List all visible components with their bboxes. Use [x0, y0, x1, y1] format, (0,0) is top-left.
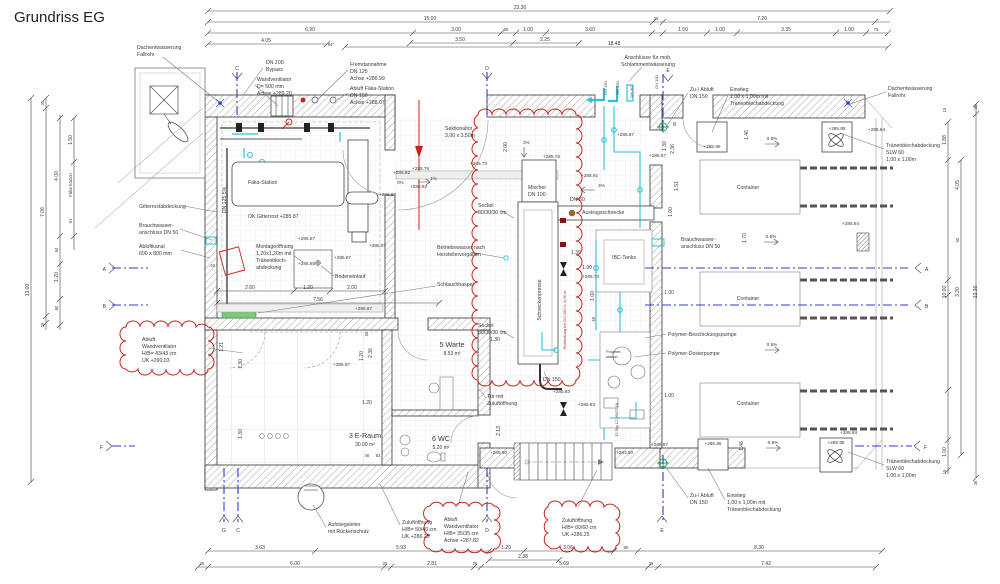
dim-label: 3.50 — [455, 37, 465, 43]
elevation-label: +285.84 — [868, 127, 885, 132]
elevation-label: 1% — [430, 176, 437, 181]
dim-label: 2.25 — [540, 37, 550, 43]
elevation-label: +285.83 — [578, 402, 595, 407]
section-marker: A — [103, 267, 107, 273]
dim-label: 1.88 — [942, 135, 948, 145]
dim-label: 1.46 — [739, 441, 745, 451]
annotation-label: Zu-/ Abluft — [690, 87, 714, 93]
elevation-label: +285.83 — [553, 389, 570, 394]
elevation-label: +285.86 — [703, 144, 720, 149]
annotation-label: Sockel — [478, 203, 494, 209]
annotation-label: DN 125 — [350, 69, 368, 75]
section-marker: G — [222, 528, 226, 534]
equipment-label: Schneckenpresse — [537, 279, 543, 320]
annotation-label: anschluss DN 50 — [139, 230, 178, 236]
section-marker: B — [103, 304, 107, 310]
section-marker: E — [660, 528, 664, 534]
elevation-label: +285.82 — [410, 184, 427, 189]
annotation-label: 1,00 x 1,00m — [886, 473, 916, 479]
dim-label: 2.00 — [347, 285, 357, 291]
dim-label: 5.69 — [559, 561, 569, 567]
dim-label: 15 — [942, 469, 947, 474]
dim-label: 7.06 — [40, 207, 46, 217]
annotation-label: Polymer-Dosierpumpe — [668, 351, 720, 357]
dim-label: 1.30 — [238, 359, 244, 369]
foundation-block — [857, 233, 869, 251]
dim-label: 64° — [328, 42, 335, 47]
container-3: Container — [700, 383, 800, 437]
dim-label: 1.30 — [662, 141, 668, 151]
dim-label: 35 — [40, 100, 45, 105]
room-label: 3 E-Raum — [349, 431, 381, 440]
elevation-label: +285.87 — [379, 192, 396, 197]
dim-label: 50 — [504, 27, 509, 32]
dim-label: 4.05 — [261, 38, 271, 44]
dim-label: 1.00 — [664, 393, 674, 399]
dim-label: 35 — [200, 561, 205, 566]
elevation-label: +285.87 — [651, 442, 668, 447]
annotation-label: Tränenblechabdeckung — [730, 101, 784, 107]
dim-label: 10.00 — [942, 286, 948, 299]
annotation-label: Brauchwasser- — [139, 223, 174, 229]
dim-label: 2.36 — [670, 144, 676, 154]
container-label: Container — [737, 185, 760, 191]
dim-label: 1.20 — [359, 351, 365, 361]
annotation-label: Betriebswasser nach — [437, 245, 485, 251]
annotation-label: Zuluftöffnung — [402, 520, 432, 526]
annotation-label: DN 150 — [350, 93, 368, 99]
dim-label: 91 — [68, 218, 73, 223]
polymer-station — [600, 332, 650, 428]
dim-label: 40 — [365, 453, 370, 458]
elevation-label: +285.87 — [649, 153, 666, 158]
dim-label: 94 — [54, 247, 59, 252]
dim-label: 4.00 — [54, 171, 60, 181]
annotation-label: Tür mit — [487, 394, 504, 400]
annotation-label: DN 125 5% — [222, 186, 228, 213]
drain-propeller-icon — [826, 132, 845, 465]
dimensions-right: 15 35 1.88 4.05 50 10.00 3.20 12.36 1.00… — [942, 104, 979, 485]
ibc-tanks — [596, 230, 652, 292]
annotation-label: Achse +286.99 — [350, 76, 385, 82]
dim-label: 35 — [973, 104, 978, 109]
dim-label: 5.93 — [396, 545, 406, 551]
room-area-label: 8.53 m² — [444, 351, 461, 357]
dim-label: 1.50 — [68, 135, 74, 145]
annotation-label: H/B= 35/35 cm — [444, 531, 478, 537]
section-marker: F — [924, 445, 927, 451]
equipment-label: IBC-Tanks — [612, 255, 636, 261]
dimensions-left: 13.00 35 7.06 25 1.50 4.00 Fäka-Station … — [25, 100, 74, 327]
pipe-label: DN 80 — [629, 86, 634, 98]
pipe-label: DN 150 — [603, 80, 608, 94]
annotation-label: Bypass — [266, 67, 283, 73]
dim-label: 1.51 — [674, 181, 680, 191]
dim-label: 35 — [649, 561, 654, 566]
section-marker: D — [485, 528, 489, 534]
dim-label: 7.20 — [757, 16, 767, 22]
annotation-label: Montageöffnung — [256, 244, 294, 250]
annotation-label: Abluft — [444, 517, 458, 523]
annotation-label: 1,00 x 1,00m — [886, 157, 916, 163]
container-1: Container — [700, 160, 800, 214]
equipment-label: station — [606, 354, 618, 359]
dim-label: 1.20 — [501, 545, 511, 551]
dim-label: 1.00 — [664, 290, 674, 296]
annotation-label: Schlauchhaspel — [437, 282, 474, 288]
annotation-label: Abluft — [142, 337, 156, 343]
annotation-label: Abluft Fäka-Station — [350, 86, 394, 92]
dim-label: 30 — [672, 121, 677, 126]
dim-label: 18.48 — [608, 41, 621, 47]
container-yard: Container Container Container — [697, 122, 893, 472]
page-title: Grundriss EG — [14, 9, 105, 26]
slope-label: 0.5% — [768, 440, 779, 445]
annotation-label: DN 200 — [266, 60, 284, 66]
elevation-label: +285.76 — [543, 154, 560, 159]
equipment-label: Austragsschnecke — [582, 210, 625, 216]
annotation-label: Gitterrostabdeckung — [139, 204, 186, 210]
annotation-label: Tränenblech- — [256, 258, 287, 264]
annotation-label: Zuluftöffnung — [487, 401, 517, 407]
annotation-label: 1,00 x 1,00m mit — [727, 500, 766, 506]
annotation-label: UK +286.25 — [402, 534, 430, 540]
annotation-label: H/B= 60/60 cm — [562, 525, 596, 531]
slope-label: 0.5% — [766, 234, 777, 239]
dim-label: 1.00 — [844, 27, 854, 33]
elevation-label: +285.86 — [704, 441, 721, 446]
annotation-label: Tränenblechabdeckung — [886, 143, 940, 149]
room-area-label: 30.00 m² — [355, 442, 375, 448]
dim-label: 15.00 — [424, 16, 437, 22]
annotation-label: Rohrleitung für DN 250 l= 4,05 m — [562, 290, 567, 349]
annotation-label: DN 150 — [543, 377, 561, 383]
dim-label: 1.70 — [742, 233, 748, 243]
dim-label: 3.35 — [781, 27, 791, 33]
annotation-label: Sektionaltor — [445, 126, 473, 132]
annotation-label: Wandventilator — [444, 524, 479, 530]
dim-label: 1.00 — [523, 27, 533, 33]
elevation-label: 3% — [598, 183, 605, 188]
dim-label: Fäka-Station — [68, 172, 73, 196]
dim-label: 2.81 — [427, 561, 437, 567]
dim-label: 75 — [874, 27, 879, 32]
dim-label: 1.30 — [238, 429, 244, 439]
drop-shaft — [348, 140, 368, 232]
annotation-label: Polymer-Beschickungspumpe — [668, 332, 737, 338]
dim-label: 3.63 — [255, 545, 265, 551]
slope-label: 0.5% — [767, 136, 778, 141]
floor-plan-drawing: Grundriss EG Container — [0, 0, 1000, 584]
annotation-label: Aufstiegsleiter — [328, 522, 361, 528]
elevation-label: +285.91 — [581, 173, 598, 178]
annotation-label: mit Rückenschutz — [328, 529, 369, 535]
annotation-label: abdeckung — [256, 265, 281, 271]
annotation-label: Brauchwasser- — [681, 237, 716, 243]
dim-label: 1.20 — [303, 285, 313, 291]
room-equipment-label: Fäka-Station — [248, 180, 278, 186]
room-label: 5 Warte — [440, 340, 465, 349]
dim-label: 25 — [473, 561, 478, 566]
annotation-label: DN 80 — [570, 197, 585, 203]
elevation-label: +285.84 — [842, 221, 859, 226]
dim-label: 25 — [383, 561, 388, 566]
dim-label: 1.20 — [54, 272, 60, 282]
dim-label: 1.00 — [668, 207, 674, 217]
dim-label: 80 — [624, 545, 629, 550]
dim-label: .40 — [209, 263, 215, 268]
slope-label: 0.5% — [767, 342, 778, 347]
dim-label: 1.46 — [744, 130, 750, 140]
annotation-label: DN 150 — [690, 500, 708, 506]
dim-label: 35 — [654, 16, 659, 21]
annotation-label: 80/30/30 cm — [478, 210, 507, 216]
exterior-stair — [514, 443, 612, 480]
container-label: Container — [737, 401, 760, 407]
elevation-label: +285.87 — [334, 255, 351, 260]
elevation-label: +285.85 — [828, 126, 845, 131]
dim-label: 35 — [973, 480, 978, 485]
room-label: 6 WC — [432, 434, 450, 443]
annotation-label: Sockel — [478, 323, 494, 329]
dim-label: 50 — [955, 237, 960, 242]
stair-label: 12 Stg 17.26/27.18 — [614, 402, 619, 437]
section-marker: B — [925, 304, 929, 310]
dim-label: 1.20 — [362, 400, 372, 406]
dim-label: 7.42 — [761, 561, 771, 567]
elevation-label: +285.76 — [412, 166, 429, 171]
elevation-label: +285.87 — [333, 362, 350, 367]
dim-label: 3.06 — [563, 545, 573, 551]
elevation-label: +283.60 — [616, 450, 633, 455]
section-marker: D — [485, 66, 489, 72]
annotation-label: UK +290.03 — [142, 358, 170, 364]
elevation-label: +285.87 — [617, 132, 634, 137]
elevation-label: +285.87 — [355, 306, 372, 311]
dim-label: 3.60 — [585, 27, 595, 33]
annotation-label: Zuluftöffnung — [562, 518, 592, 524]
annotation-label: OK Gitterrost +285.87 — [248, 214, 299, 220]
annotation-label: Einstieg — [727, 493, 746, 499]
annotation-label: UK +286.25 — [562, 532, 590, 538]
elevation-label: +285.85 — [298, 261, 315, 266]
dim-label: 2.36 — [368, 348, 374, 358]
annotation-label: 1,00 x 1,00m mit — [730, 94, 769, 100]
container-2: Container — [700, 272, 800, 326]
dim-label: 1.90 — [582, 265, 592, 271]
annotation-label: D= 500 mm — [257, 84, 284, 90]
section-marker: F — [100, 445, 103, 451]
dim-label: 1.00 — [715, 27, 725, 33]
elevation-label: +285.80 — [490, 450, 507, 455]
annotation-label: Herstellervorgaben — [437, 252, 481, 258]
annotation-label: SLW 60 — [886, 466, 904, 472]
dim-label: 3.00 — [451, 27, 461, 33]
pump — [346, 192, 378, 204]
elevation-label: 3% — [523, 140, 530, 145]
annotation-label: Fallrohr — [137, 52, 155, 58]
mobile-connections — [586, 85, 633, 103]
elevation-label: +285.87 — [369, 243, 386, 248]
room-area-label: 5.20 m² — [433, 445, 450, 451]
annotation-label: H/B= 50/40 cm — [402, 527, 436, 533]
dimensions-bottom: 3.63 5.93 1.20 3.06 80 8.30 2.38 35 6.00… — [200, 545, 771, 567]
elevation-label: 0% — [397, 180, 404, 185]
elevation-label: +285.82 — [393, 170, 410, 175]
dim-label: 6.90 — [305, 27, 315, 33]
dim-label: 60 — [591, 316, 596, 321]
dim-label: 50 — [364, 331, 369, 336]
dim-label: 3.20 — [955, 287, 961, 297]
dim-label: 25 — [40, 322, 45, 327]
dim-label: 1.00 — [942, 447, 948, 457]
dim-label: 2.00 — [503, 142, 509, 152]
annotation-label: 1,20x1,20m mit — [256, 251, 292, 257]
annotation-label: Wandventilator — [257, 77, 292, 83]
dim-label: 2.60 — [245, 285, 255, 291]
dim-label: 1.30 — [490, 337, 500, 343]
dim-label: 1.50 — [678, 27, 688, 33]
elevation-label: +285.73 — [470, 161, 487, 166]
annotation-label: H/B= 43/43 cm — [142, 351, 176, 357]
dim-label: 8.30 — [754, 545, 764, 551]
annotation-label: Achse +289.20 — [257, 91, 292, 97]
dim-label: 92 — [376, 453, 381, 458]
dim-label: 1.21 — [219, 342, 225, 352]
annotation-label: Fremdannahme — [350, 62, 387, 68]
annotation-label: Dachentwässerung — [888, 86, 933, 92]
dim-label: 23.30 — [514, 5, 527, 11]
annotation-label: Zu-/ Abluft — [690, 493, 714, 499]
annotation-label: SLW 60 — [886, 150, 904, 156]
section-marker: E — [666, 68, 670, 74]
annotation-label: Tränenblechabdeckung — [886, 459, 940, 465]
dim-label: 12.36 — [973, 286, 979, 299]
annotation-label: 80/30/30 cm — [478, 330, 507, 336]
annotation-label: DN 100 — [528, 192, 546, 198]
annotation-label: Achse +287.82 — [444, 538, 479, 544]
annotation-label: Wandventilator — [142, 344, 177, 350]
dim-label: 1.35 — [571, 250, 581, 256]
annotation-label: Fallrohr — [888, 93, 906, 99]
annotation-label: Abluftkanal — [139, 244, 165, 250]
dim-label: 4.05 — [955, 180, 961, 190]
section-marker: C — [235, 66, 239, 72]
annotation-label: DN 150 — [690, 94, 708, 100]
dim-label: 13.00 — [25, 284, 31, 297]
annotation-label: Tränenblechabdeckung — [727, 507, 781, 513]
pipe-label: DN 150 — [615, 80, 620, 94]
dim-label: 1.00 — [590, 291, 596, 301]
annotation-label: Anschlüsse für mob. — [625, 55, 672, 61]
annotation-label: Dachentwässerung — [137, 45, 182, 51]
floor-plan-canvas: Grundriss EG Container — [0, 0, 1000, 584]
elevation-label: +285.87 — [298, 236, 315, 241]
pipe-label: DN 100 — [654, 74, 659, 88]
elevation-label: +285.85 — [827, 440, 844, 445]
ladder — [298, 484, 324, 510]
annotation-label: Einstieg — [730, 87, 749, 93]
annotation-label: Achse +288.07 — [350, 100, 385, 106]
dim-label: 6.00 — [290, 561, 300, 567]
annotation-label: 600 x 800 mm — [139, 251, 172, 257]
dim-label: 90 — [54, 305, 59, 310]
elevation-label: +285.84 — [840, 430, 857, 435]
container-label: Container — [737, 296, 760, 302]
dim-label: 2.38 — [518, 554, 528, 560]
dim-label: 2.13 — [496, 426, 502, 436]
annotation-label: Bodeneinlauf — [335, 274, 366, 280]
annotation-label: 3,00 x 3,50m — [445, 133, 475, 139]
section-marker: A — [925, 267, 929, 273]
dim-label: 15 — [942, 107, 947, 112]
section-marker: C — [236, 528, 240, 534]
elevation-label: +285.73 — [582, 274, 599, 279]
annotation-label: anschluss DN 50 — [681, 244, 720, 250]
dim-label: 7.56 — [313, 297, 323, 303]
annotation-label: Mischer — [528, 185, 546, 191]
